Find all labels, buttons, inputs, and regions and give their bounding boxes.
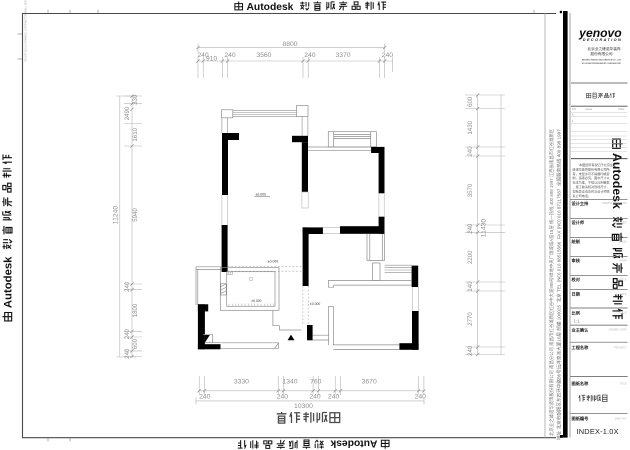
svg-text:1430: 1430 [467, 120, 474, 134]
svg-text:1340: 1340 [282, 379, 297, 386]
svg-text:2490: 2490 [124, 106, 131, 120]
svg-text:NO.16 SIHUI DONGSIHUAN RD, CHA: NO.16 SIHUI DONGSIHUAN RD, CHAOYANG DIST [582, 62, 622, 65]
svg-text:，施工前请核对现场尺寸，: ，施工前请核对现场尺寸， [573, 184, 610, 189]
svg-text:600: 600 [467, 96, 474, 107]
svg-text:DRAW: DRAW [619, 239, 627, 243]
svg-text:系公司电话。: 系公司电话。 [573, 193, 592, 198]
svg-text:240: 240 [328, 394, 340, 401]
svg-text:DATE: DATE [620, 292, 627, 296]
svg-text:5940: 5940 [132, 208, 139, 222]
svg-text:DESIGNER: DESIGNER [613, 220, 627, 224]
svg-text:±0.000: ±0.000 [268, 259, 278, 263]
svg-text:设计主持: 设计主持 [572, 200, 590, 207]
svg-text:CHECK: CHECK [617, 277, 626, 281]
svg-text:业主确认: 业主确认 [572, 327, 590, 334]
svg-text:如有异议请及时与设计师联: 如有异议请及时与设计师联 [573, 188, 610, 193]
svg-text:校对: 校对 [572, 276, 581, 283]
svg-text:240: 240 [467, 146, 474, 157]
svg-text:A: A [572, 113, 574, 117]
svg-text:设计师: 设计师 [572, 219, 585, 226]
svg-text:240: 240 [199, 394, 211, 401]
svg-text:240: 240 [415, 394, 427, 401]
svg-text:1:1: 1:1 [574, 318, 581, 323]
svg-text:Issue: Issue [586, 107, 593, 111]
svg-text:240: 240 [224, 52, 236, 59]
svg-text:制，违者必究。图中尺寸以: 制，违者必究。图中尺寸以 [573, 175, 610, 180]
svg-text:240: 240 [277, 394, 289, 401]
svg-text:11240: 11240 [113, 206, 120, 225]
svg-text:8800: 8800 [282, 41, 297, 48]
svg-text:±0.000: ±0.000 [256, 192, 266, 196]
svg-text:1610: 1610 [132, 127, 139, 141]
svg-text:3670: 3670 [362, 379, 377, 386]
svg-text:760: 760 [310, 379, 322, 386]
svg-text:DWG NO.: DWG NO. [615, 416, 627, 420]
svg-text:3330: 3330 [234, 379, 249, 386]
svg-text:图纸名称: 图纸名称 [572, 380, 590, 387]
svg-text:240: 240 [124, 329, 131, 340]
svg-text:2: 2 [572, 119, 574, 123]
svg-text:240: 240 [467, 345, 474, 356]
svg-text:240: 240 [309, 394, 321, 401]
svg-text:10300: 10300 [294, 403, 313, 410]
svg-text:910: 910 [206, 55, 218, 62]
svg-text:TITLE: TITLE [619, 381, 626, 385]
svg-text:NO.: NO. [572, 107, 577, 111]
svg-text:日期: 日期 [572, 291, 580, 298]
svg-text:图纸编号: 图纸编号 [572, 415, 589, 422]
svg-text:240: 240 [124, 281, 131, 292]
svg-text:本图纸所有权归于北京业之: 本图纸所有权归于北京业之 [579, 162, 616, 167]
svg-text:DO NOT SCALE DRAWING. CONTRACT: DO NOT SCALE DRAWING. CONTRACTOR SHALL V… [25, 0, 28, 62]
svg-text:2200: 2200 [467, 250, 474, 264]
svg-text:±0.000: ±0.000 [251, 299, 261, 303]
svg-text:峰诺华装饰股份有限公司所: 峰诺华装饰股份有限公司所 [573, 166, 610, 171]
svg-text:绘制: 绘制 [572, 238, 580, 245]
svg-text:DECORATION: DECORATION [583, 38, 621, 42]
svg-text:3560: 3560 [256, 52, 271, 59]
svg-text:240: 240 [467, 223, 474, 234]
svg-text:140: 140 [467, 281, 474, 292]
svg-text:北京业之峰诺华装饰: 北京业之峰诺华装饰 [587, 46, 620, 51]
svg-text:±0.000: ±0.000 [310, 302, 320, 306]
svg-text:APPR: APPR [619, 258, 626, 262]
svg-text:3570: 3570 [467, 183, 474, 197]
svg-text:3370: 3370 [335, 52, 350, 59]
svg-text:240: 240 [382, 52, 394, 59]
svg-text:2770: 2770 [467, 312, 474, 326]
svg-text:标注为准，不得以比例量取: 标注为准，不得以比例量取 [573, 180, 610, 185]
svg-text:11430: 11430 [481, 219, 488, 238]
svg-text:OWNER CONF: OWNER CONF [608, 328, 626, 332]
svg-text:INDEX-1.0X: INDEX-1.0X [577, 427, 619, 436]
svg-text:比例: 比例 [572, 309, 580, 316]
svg-text:工程名称: 工程名称 [572, 344, 590, 351]
svg-text:240: 240 [304, 52, 316, 59]
svg-text:PROJECT: PROJECT [614, 345, 627, 349]
svg-text:审核: 审核 [572, 257, 581, 264]
svg-text:SCALE: SCALE [618, 311, 627, 315]
svg-text:600: 600 [132, 338, 139, 349]
svg-text:北京业之峰诺华装饰股份有限公司 南昌分公司 南昌市红谷滩新区: 北京业之峰诺华装饰股份有限公司 南昌分公司 南昌市红谷滩新区红谷中大道998号绿… [548, 128, 555, 436]
svg-text:1800: 1800 [132, 303, 139, 317]
svg-text:股份有限公司: 股份有限公司 [590, 51, 612, 56]
svg-text:有，未经许可不得翻印或复: 有，未经许可不得翻印或复 [573, 171, 610, 176]
svg-text:地址 北京市朝阳区东四环中路56号远洋亰派大厦10层 邮编: 地址 北京市朝阳区东四环中路56号远洋亰派大厦10层 邮编 100025 北京 … [556, 129, 563, 440]
svg-text:Date: Date [619, 107, 625, 111]
svg-text:BEIJING YENOVO DECORATION CO.,: BEIJING YENOVO DECORATION CO., LTD [582, 58, 621, 61]
svg-text:DESIGN DIRECTOR: DESIGN DIRECTOR [602, 201, 626, 205]
